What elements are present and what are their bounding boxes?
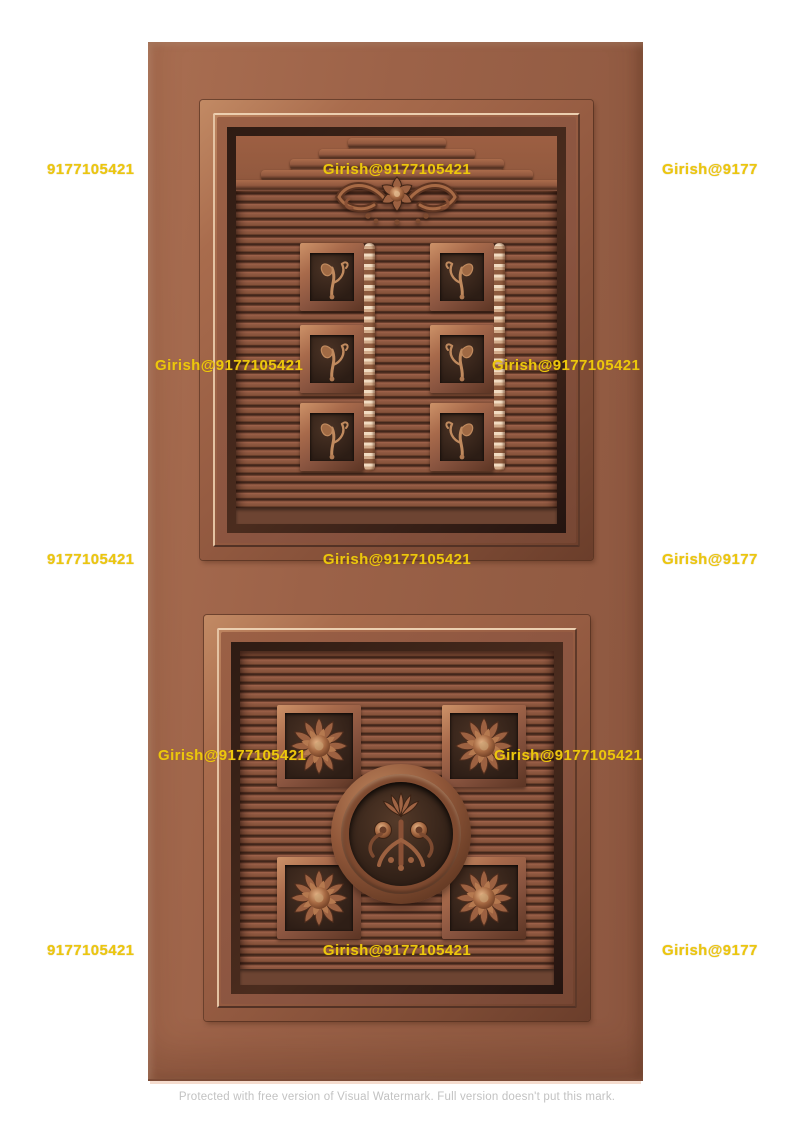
- page: 9177105421 Girish@9177105421 Girish@9177…: [0, 0, 794, 1123]
- top-panel-louver-field: [236, 136, 557, 524]
- medallion-bouquet-graphic: [351, 784, 451, 884]
- leaf-carving-graphic: [310, 413, 354, 461]
- sunflower-rosette-graphic: [287, 866, 351, 930]
- leaf-carving-graphic: [440, 253, 484, 301]
- watermark-text: Girish@9177105421: [323, 551, 471, 568]
- leaf-carving-graphic: [310, 253, 354, 301]
- beaded-column: [364, 243, 375, 471]
- bottom-panel-louver-field: [240, 651, 554, 985]
- sunflower-rosette-graphic: [287, 714, 351, 778]
- leaf-carving-graphic: [310, 335, 354, 383]
- carved-square: [430, 403, 494, 471]
- watermark-footer-note: Protected with free version of Visual Wa…: [179, 1091, 615, 1103]
- leaf-carving-graphic: [440, 413, 484, 461]
- carved-square: [430, 243, 494, 311]
- watermark-text: Girish@9177: [662, 161, 758, 178]
- floor-reflection-line: [150, 1081, 641, 1084]
- field-bottom-band: [240, 969, 554, 985]
- leaf-carving-graphic: [440, 335, 484, 383]
- watermark-text: Girish@9177105421: [492, 357, 640, 374]
- carved-square: [300, 403, 364, 471]
- center-medallion: [331, 764, 471, 904]
- rosette-carving: [277, 705, 361, 787]
- carved-square: [300, 325, 364, 393]
- sunflower-rosette-graphic: [452, 866, 516, 930]
- watermark-text: Girish@9177105421: [158, 747, 306, 764]
- watermark-text: 9177105421: [47, 161, 134, 178]
- carved-square: [430, 325, 494, 393]
- sunflower-rosette-graphic: [452, 714, 516, 778]
- watermark-text: Girish@9177105421: [155, 357, 303, 374]
- watermark-text: Girish@9177105421: [494, 747, 642, 764]
- rosette-carving: [442, 705, 526, 787]
- watermark-text: Girish@9177105421: [323, 942, 471, 959]
- watermark-text: Girish@9177: [662, 942, 758, 959]
- watermark-text: Girish@9177: [662, 551, 758, 568]
- door-bottom-panel: [204, 615, 590, 1021]
- carved-square: [300, 243, 364, 311]
- watermark-text: 9177105421: [47, 551, 134, 568]
- field-bottom-band: [236, 508, 557, 524]
- watermark-text: 9177105421: [47, 942, 134, 959]
- watermark-text: Girish@9177105421: [323, 161, 471, 178]
